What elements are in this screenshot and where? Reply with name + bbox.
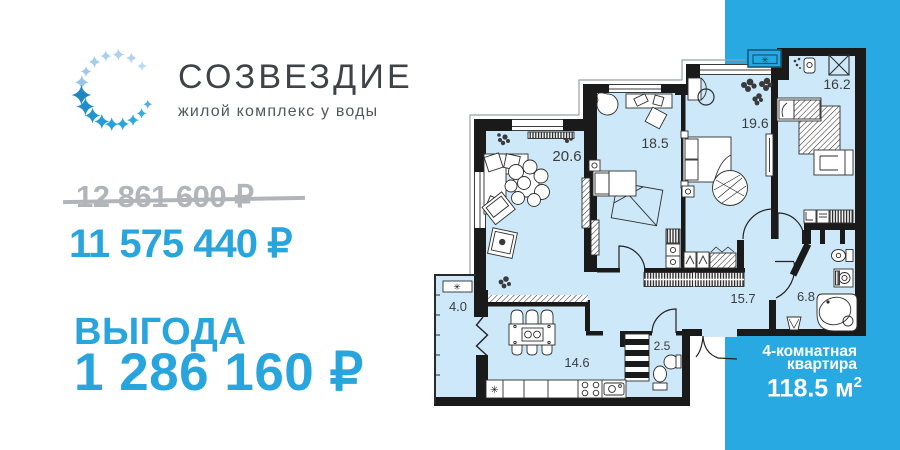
svg-text:2.5: 2.5 [654, 339, 671, 353]
svg-text:19.6: 19.6 [741, 115, 768, 131]
svg-text:✳: ✳ [453, 282, 461, 292]
svg-text:18.5: 18.5 [641, 135, 668, 151]
svg-text:16.2: 16.2 [823, 76, 850, 92]
svg-text:✳: ✳ [761, 55, 769, 65]
svg-text:✳: ✳ [490, 385, 498, 396]
svg-text:6.8: 6.8 [797, 289, 815, 304]
svg-text:4.0: 4.0 [449, 299, 467, 314]
svg-text:14.6: 14.6 [564, 355, 589, 370]
svg-text:20.6: 20.6 [552, 148, 581, 165]
svg-text:15.7: 15.7 [730, 291, 755, 306]
